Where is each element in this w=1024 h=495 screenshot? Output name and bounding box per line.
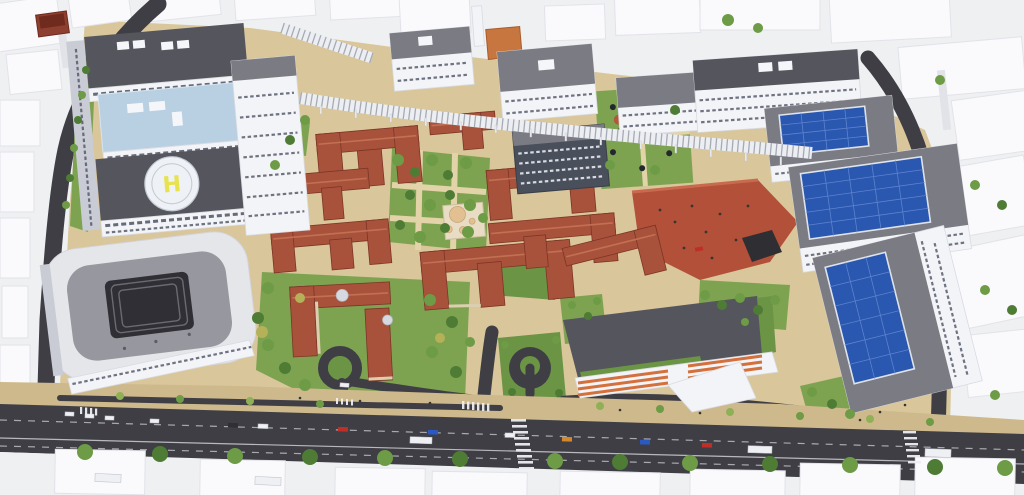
truck [95,474,121,483]
pavilion-dome [382,315,393,326]
bus [410,437,432,444]
truck [925,449,951,458]
brick-landmark-building [36,11,70,37]
car [428,430,438,435]
car [105,416,114,420]
block-d [390,26,475,91]
car [338,427,348,432]
car [85,414,94,418]
car [258,424,268,429]
car [340,383,349,388]
helipad-h-marking: H [162,172,183,199]
car [150,419,159,423]
car [562,437,572,442]
truck [255,477,281,486]
car [702,443,712,448]
pavilion-dome [336,289,349,302]
block-e [497,44,598,122]
car [65,412,74,416]
bus [748,446,772,454]
aerial-rendering: Bird's-eye 3D architectural rendering of… [0,0,1024,495]
car [640,440,650,445]
car [228,423,238,428]
scene-svg: Bird's-eye 3D architectural rendering of… [0,0,1024,495]
